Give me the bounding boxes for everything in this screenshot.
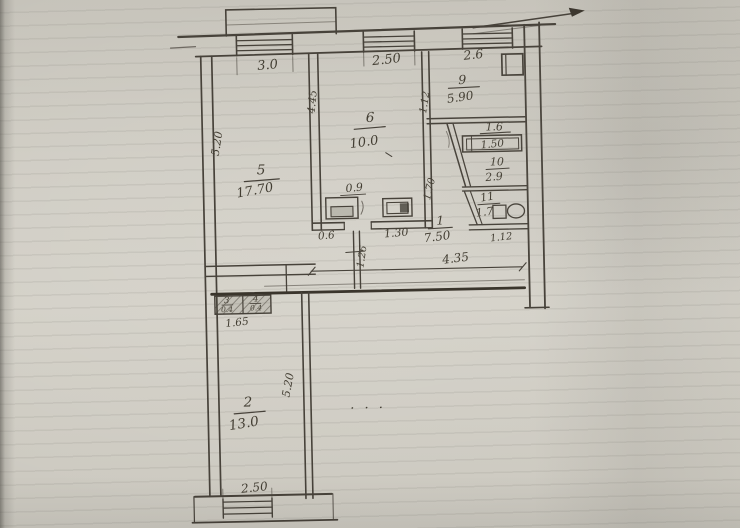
bath-bottom-wall — [462, 186, 526, 187]
window-sill-line — [223, 507, 272, 508]
dim-bathtub: 1.50 — [480, 137, 505, 151]
dim-hall-width: 4.35 — [440, 250, 469, 267]
wc11-number: 11 — [479, 190, 495, 205]
floor-plan-drawing: 3.0 2.50 2.6 9 5.90 1.6 1.50 10 2.9 11 1… — [0, 0, 740, 528]
balcony-inner-line — [226, 22, 336, 25]
bottom-wall — [192, 494, 338, 523]
plan-group: 3.0 2.50 2.6 9 5.90 1.6 1.50 10 2.9 11 1… — [170, 2, 596, 523]
kitchen-right-wall — [422, 52, 426, 228]
dim-130: 1.30 — [383, 225, 409, 240]
closet4-area: 0.4 — [250, 303, 262, 312]
room9-area: 5.90 — [446, 88, 475, 106]
wall-connector — [286, 265, 287, 292]
window-sill-line — [363, 41, 414, 42]
dim-bath-width: 1.6 — [485, 120, 503, 133]
kitchen6-area: 10.0 — [349, 133, 380, 152]
window-sill-line — [462, 33, 512, 34]
dim-wc-width: 1.12 — [490, 231, 513, 244]
hall1-area: 7.50 — [423, 228, 452, 245]
dim-closets-width: 1.65 — [225, 316, 250, 330]
hall-bottom-faint-line — [265, 280, 525, 286]
stove-burner-block — [400, 203, 409, 212]
window-sill-line — [236, 40, 292, 41]
scanned-floor-plan-photo: 3.0 2.50 2.6 9 5.90 1.6 1.50 10 2.9 11 1… — [0, 0, 740, 528]
closet3-area: 0.4 — [221, 305, 233, 314]
window-room9 — [462, 28, 512, 49]
window-sill-line — [462, 38, 512, 39]
top-wall-inner-line — [196, 46, 542, 56]
bath-bottom-wall — [463, 190, 527, 191]
dim-window-left: 3.0 — [257, 57, 279, 74]
wc-bottom-wall — [469, 224, 527, 225]
kitchen-check-tick — [386, 153, 392, 157]
hall1-number: 1 — [436, 213, 444, 227]
dim-line — [311, 267, 522, 271]
bottom-wall-outer-line — [192, 520, 337, 523]
toilet-tank — [493, 205, 506, 218]
bath10-area: 2.9 — [484, 170, 504, 185]
labels: 3.0 2.50 2.6 9 5.90 1.6 1.50 10 2.9 11 1… — [207, 45, 519, 496]
kitchen-left-wall — [309, 54, 313, 230]
fixture-scribble — [361, 201, 364, 214]
room5-bottom-wall — [205, 274, 315, 276]
window-sill-line — [364, 46, 415, 47]
arrowhead — [569, 7, 585, 16]
room5-area: 17.70 — [235, 180, 274, 201]
bottom-wall-right-join — [333, 494, 334, 520]
vent-duct-box — [502, 54, 523, 75]
dim-window-bottom: 2.50 — [239, 479, 268, 496]
wc11-area: 1.7 — [475, 205, 494, 220]
pencil-dots-mark: · · · — [350, 401, 386, 417]
kitchen-bottom-wall — [371, 221, 432, 222]
toilet-bowl — [507, 204, 524, 218]
north-leader-arrow — [473, 7, 585, 33]
dim-kitchen-door: 0.9 — [345, 181, 364, 196]
room5-number: 5 — [257, 162, 266, 178]
room2-right-wall — [309, 292, 313, 498]
room2-area: 13.0 — [228, 413, 261, 434]
wc-bottom-wall — [469, 229, 527, 230]
dim-window-right: 2.6 — [462, 46, 484, 63]
dim-room5-side: 5.20 — [209, 130, 226, 156]
dim-06: 0.6 — [318, 229, 336, 242]
window-sill-line — [363, 36, 414, 37]
kitchen-fixtures — [326, 196, 412, 219]
room9-number: 9 — [458, 72, 466, 87]
hall-width-dimension — [308, 263, 526, 276]
room9-bottom-wall — [427, 117, 525, 119]
room5-bottom-wall — [205, 264, 315, 266]
right-wall-outer-line — [539, 22, 545, 308]
room2-right-wall — [302, 292, 306, 498]
dim-kitchen-side: 4.45 — [305, 89, 319, 115]
top-wall-left-tick — [170, 47, 195, 49]
dim-room2-side: 5.20 — [279, 372, 296, 399]
kitchen6-fraction-line — [354, 127, 385, 130]
dim-window-mid: 2.50 — [370, 51, 401, 69]
kitchen-bottom-wall — [312, 223, 344, 224]
pencil-scribble — [446, 131, 449, 147]
bath10-number: 10 — [490, 155, 504, 168]
window-sill-line — [223, 501, 272, 502]
hall-bottom-wall-dark — [212, 288, 525, 295]
window-sill-line — [223, 513, 272, 514]
window-sill-line — [462, 43, 512, 44]
window-sill-line — [236, 45, 292, 46]
bottom-wall-inner-line — [195, 494, 332, 497]
hall-stub-wall — [353, 231, 354, 288]
room2-fraction-line — [234, 411, 265, 414]
kitchen-walls — [309, 52, 434, 289]
room2-number: 2 — [242, 394, 252, 410]
right-wall-end-tick — [525, 307, 549, 308]
dim-vertical-126: 1.26 — [355, 244, 369, 268]
window-sill-line — [237, 50, 293, 51]
kitchen6-number: 6 — [366, 110, 375, 126]
kitchen-left-wall — [318, 54, 322, 230]
sink-basin — [331, 206, 353, 216]
bottom-wall-left-join — [194, 497, 195, 523]
room9-bottom-wall — [427, 122, 525, 124]
